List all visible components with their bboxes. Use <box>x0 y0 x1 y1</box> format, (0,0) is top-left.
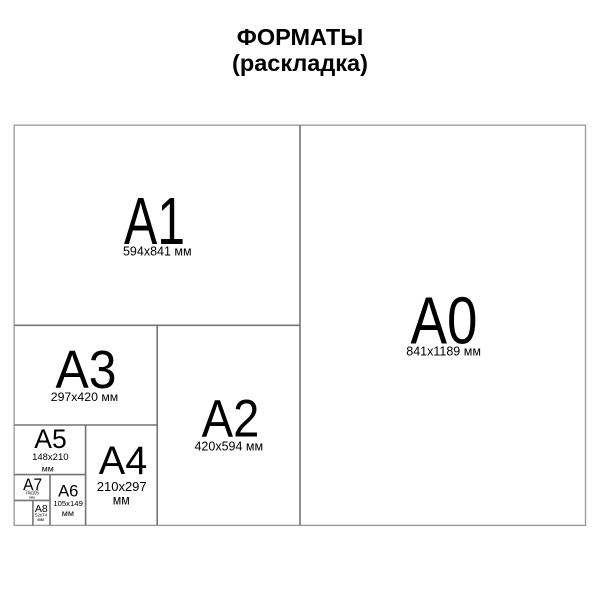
svg-text:841x1189 мм: 841x1189 мм <box>406 345 481 359</box>
svg-text:A4: A4 <box>99 439 148 483</box>
svg-text:мм: мм <box>62 509 75 518</box>
svg-text:мм: мм <box>29 494 35 499</box>
svg-text:A5: A5 <box>34 424 66 454</box>
svg-text:ФОРМАТЫ: ФОРМАТЫ <box>237 24 363 50</box>
svg-text:420x594 мм: 420x594 мм <box>194 440 263 454</box>
svg-text:594x841 мм: 594x841 мм <box>123 245 192 259</box>
svg-text:(раскладка): (раскладка) <box>232 50 368 76</box>
svg-text:мм: мм <box>113 491 130 507</box>
svg-text:мм: мм <box>37 517 44 522</box>
svg-text:A6: A6 <box>58 482 78 501</box>
svg-text:мм: мм <box>42 464 54 473</box>
svg-text:148x210: 148x210 <box>32 452 68 463</box>
svg-text:105x149: 105x149 <box>53 499 83 508</box>
svg-text:297x420 мм: 297x420 мм <box>51 390 119 404</box>
